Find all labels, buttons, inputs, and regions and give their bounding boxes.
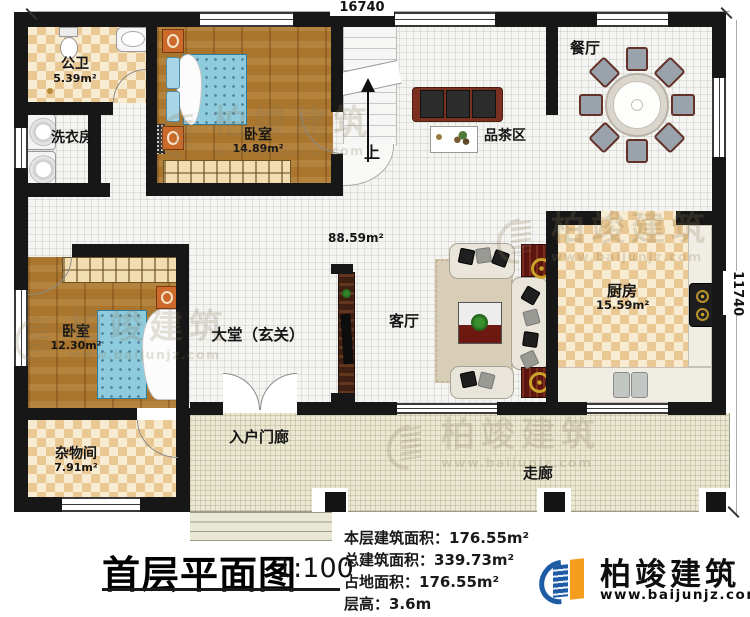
dimension-line-right bbox=[736, 20, 737, 516]
room-label-dining: 餐厅 bbox=[561, 40, 609, 57]
dimension-width-label: 16740 bbox=[330, 0, 394, 16]
stat-land-area: 占地面积：176.55m² bbox=[344, 571, 499, 592]
logo-building-icon bbox=[553, 564, 568, 598]
room-area-storage: 7.91m² bbox=[48, 462, 104, 474]
lazy-susan-icon bbox=[631, 99, 643, 111]
wall-segment bbox=[331, 264, 353, 274]
pillar-icon bbox=[325, 492, 346, 512]
nightstand-icon bbox=[162, 126, 184, 150]
floor-drain-icon bbox=[47, 88, 53, 94]
burner-icon bbox=[696, 308, 709, 321]
room-label-living: 客厅 bbox=[384, 313, 424, 330]
wall-segment bbox=[14, 12, 28, 128]
pillar-icon bbox=[544, 492, 565, 512]
room-label-entry-porch: 入户门廊 bbox=[222, 429, 296, 446]
nightstand-icon bbox=[162, 29, 184, 53]
window bbox=[587, 403, 668, 414]
dimension-tick-icon bbox=[727, 506, 739, 518]
throw-pillow-icon bbox=[475, 247, 492, 264]
wall-segment bbox=[14, 497, 62, 512]
window bbox=[712, 78, 726, 157]
window bbox=[395, 12, 495, 27]
company-logo-icon bbox=[540, 551, 596, 611]
wall-segment bbox=[668, 402, 726, 415]
stat-floor-area: 本层建筑面积：176.55m² bbox=[344, 527, 529, 548]
dining-chair-icon bbox=[626, 47, 648, 71]
pillar-icon bbox=[706, 492, 726, 512]
pillow-icon bbox=[166, 91, 180, 122]
window bbox=[200, 12, 293, 27]
wall-segment bbox=[88, 115, 101, 183]
wall-segment bbox=[331, 26, 343, 112]
sofa-cushion bbox=[472, 90, 496, 118]
dining-chair-icon bbox=[579, 94, 603, 116]
room-area-kitchen: 15.59m² bbox=[596, 299, 648, 312]
wall-segment bbox=[712, 12, 726, 78]
dining-chair-icon bbox=[626, 139, 648, 163]
wall-segment bbox=[331, 393, 355, 403]
floor-plan-canvas: 16740 11740 bbox=[0, 0, 750, 617]
room-area-bedroom-left: 12.30m² bbox=[46, 340, 106, 352]
room-area-bath: 5.39m² bbox=[40, 73, 110, 85]
bed-mattress bbox=[97, 310, 147, 399]
sink-basin-icon bbox=[631, 372, 648, 398]
room-label-corridor: 走廊 bbox=[516, 465, 560, 482]
room-label-laundry: 洗衣房 bbox=[36, 131, 108, 146]
room-area-bedroom-top: 14.89m² bbox=[223, 143, 293, 155]
logo-building-icon bbox=[570, 558, 584, 599]
room-label-bath: 公卫 bbox=[40, 57, 110, 72]
title-underline bbox=[102, 588, 340, 591]
wall-segment bbox=[14, 183, 110, 197]
stat-total-area: 总建筑面积：339.73m² bbox=[344, 549, 514, 570]
porch-steps bbox=[190, 512, 332, 541]
room-label-lobby: 大堂（玄关） bbox=[210, 327, 306, 344]
wall-segment bbox=[14, 12, 200, 27]
wardrobe bbox=[62, 257, 177, 283]
hall-area-label: 88.59m² bbox=[328, 232, 380, 245]
wall-segment bbox=[14, 408, 137, 420]
wall-segment bbox=[676, 211, 712, 225]
window bbox=[397, 403, 497, 414]
wall-segment bbox=[28, 102, 113, 115]
floor-kitchen-threshold bbox=[601, 211, 676, 227]
company-url: www.baijunjz.com bbox=[600, 587, 750, 603]
sofa-cushion bbox=[420, 90, 444, 118]
throw-pillow-icon bbox=[458, 248, 476, 266]
pillow-icon bbox=[166, 57, 180, 89]
toilet-tank bbox=[59, 27, 78, 37]
room-label-tea-area: 品茶区 bbox=[477, 129, 533, 144]
dimension-height-label: 11740 bbox=[723, 271, 750, 315]
wall-segment bbox=[297, 402, 397, 415]
wall-segment bbox=[331, 154, 343, 196]
wall-segment bbox=[176, 244, 189, 412]
wall-segment bbox=[546, 211, 558, 403]
bonsai-icon bbox=[452, 129, 470, 147]
burner-icon bbox=[696, 290, 709, 303]
plant-icon bbox=[342, 289, 351, 298]
wall-segment bbox=[72, 244, 178, 257]
wall-segment bbox=[146, 183, 343, 196]
arrow-up-icon bbox=[361, 78, 375, 92]
throw-pillow-icon bbox=[522, 331, 539, 348]
wall-segment bbox=[546, 12, 558, 115]
wall-segment bbox=[14, 366, 28, 512]
window bbox=[14, 128, 28, 168]
wall-segment bbox=[146, 26, 157, 186]
wall-segment bbox=[190, 402, 223, 415]
bed-duvet bbox=[142, 309, 178, 400]
stairs-up-label: 上 bbox=[352, 144, 392, 162]
nightstand-icon bbox=[156, 286, 178, 309]
window bbox=[14, 290, 28, 366]
window bbox=[62, 497, 140, 512]
tea-set-icon bbox=[436, 134, 442, 140]
stat-floor-height: 层高：3.6m bbox=[344, 593, 431, 614]
window bbox=[597, 12, 668, 27]
plant-icon bbox=[471, 314, 488, 331]
dining-chair-icon bbox=[671, 94, 695, 116]
scale-label: 1:100 bbox=[276, 553, 354, 584]
wall-segment bbox=[497, 402, 587, 415]
wall-segment bbox=[176, 408, 190, 512]
sink-basin-icon bbox=[613, 372, 630, 398]
sink-basin-icon bbox=[121, 31, 145, 47]
throw-pillow-icon bbox=[460, 371, 478, 389]
sofa-cushion bbox=[446, 90, 470, 118]
